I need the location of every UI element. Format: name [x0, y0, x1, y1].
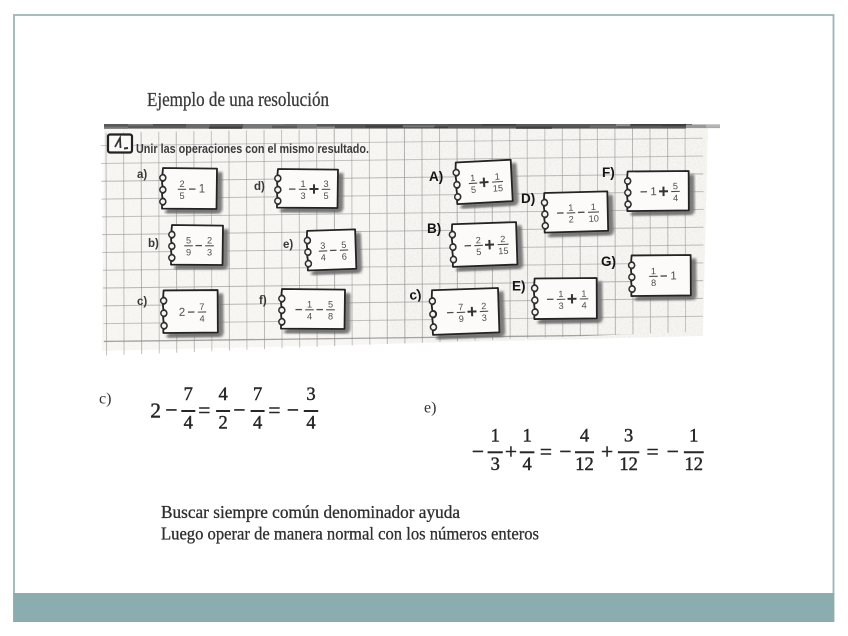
- svg-text:5: 5: [186, 236, 191, 246]
- svg-text:F): F): [602, 165, 615, 180]
- svg-text:1: 1: [307, 300, 312, 310]
- svg-text:5: 5: [673, 181, 678, 191]
- svg-text:2: 2: [500, 234, 506, 244]
- svg-text:G): G): [601, 254, 616, 269]
- svg-text:9: 9: [459, 314, 465, 324]
- svg-text:1: 1: [300, 179, 305, 189]
- svg-text:4: 4: [307, 311, 312, 321]
- svg-text:2: 2: [179, 307, 186, 319]
- svg-text:Buscar siempre común denominad: Buscar siempre común denominador ayuda: [161, 502, 460, 522]
- svg-text:4: 4: [184, 414, 193, 434]
- svg-text:2: 2: [569, 214, 574, 224]
- svg-text:−: −: [233, 398, 245, 422]
- svg-text:=: =: [198, 398, 210, 422]
- svg-text:2: 2: [481, 301, 487, 311]
- svg-text:2: 2: [179, 179, 184, 189]
- svg-text:c): c): [99, 391, 111, 408]
- svg-text:2: 2: [218, 414, 227, 434]
- svg-text:3: 3: [491, 455, 500, 475]
- svg-text:−: −: [472, 439, 484, 463]
- svg-text:1: 1: [568, 203, 573, 213]
- svg-text:1: 1: [522, 426, 531, 446]
- svg-text:4: 4: [253, 414, 262, 434]
- svg-text:3: 3: [323, 179, 328, 189]
- svg-text:3: 3: [558, 301, 563, 311]
- svg-text:10: 10: [588, 214, 599, 224]
- svg-text:4: 4: [580, 426, 589, 446]
- svg-text:12: 12: [575, 455, 594, 475]
- svg-text:4: 4: [199, 314, 204, 324]
- svg-text:=: =: [647, 439, 659, 463]
- svg-text:D): D): [521, 191, 535, 206]
- svg-text:a): a): [137, 169, 147, 181]
- svg-text:b): b): [148, 238, 159, 250]
- svg-text:+: +: [505, 439, 517, 463]
- svg-text:12: 12: [619, 455, 638, 475]
- svg-text:1: 1: [651, 266, 656, 276]
- svg-text:Unir las operaciones con el mi: Unir las operaciones con el mismo result…: [136, 141, 369, 156]
- svg-text:8: 8: [328, 311, 333, 321]
- svg-text:f): f): [259, 295, 267, 307]
- svg-text:1: 1: [581, 289, 586, 299]
- svg-text:c): c): [137, 296, 147, 308]
- svg-text:15: 15: [498, 246, 509, 256]
- svg-text:4: 4: [306, 414, 315, 434]
- svg-text:1: 1: [494, 171, 500, 181]
- svg-text:4: 4: [673, 193, 678, 203]
- svg-text:7: 7: [458, 302, 464, 312]
- svg-text:3: 3: [207, 247, 212, 257]
- svg-text:1: 1: [491, 426, 500, 446]
- svg-text:5: 5: [328, 300, 333, 310]
- svg-text:3: 3: [320, 241, 326, 251]
- svg-text:2: 2: [150, 399, 161, 423]
- svg-text:2: 2: [476, 235, 482, 245]
- svg-text:+: +: [601, 439, 613, 463]
- svg-text:1: 1: [470, 173, 476, 183]
- svg-text:7: 7: [199, 302, 204, 312]
- svg-text:B): B): [427, 221, 441, 236]
- svg-text:9: 9: [186, 247, 191, 257]
- svg-text:−: −: [165, 398, 177, 422]
- svg-text:3: 3: [482, 313, 488, 323]
- svg-text:7: 7: [184, 385, 193, 405]
- svg-text:1: 1: [670, 270, 677, 282]
- svg-text:15: 15: [493, 183, 504, 194]
- svg-text:e): e): [283, 239, 293, 251]
- svg-text:7: 7: [253, 385, 262, 405]
- svg-text:3: 3: [306, 385, 315, 405]
- svg-text:Luego operar de manera normal: Luego operar de manera normal con los nú…: [161, 523, 539, 543]
- svg-text:4: 4: [581, 300, 586, 310]
- svg-text:=: =: [268, 398, 280, 422]
- svg-text:c): c): [408, 286, 422, 303]
- svg-text:e): e): [424, 400, 436, 417]
- svg-text:5: 5: [471, 185, 477, 195]
- svg-text:−: −: [559, 439, 571, 463]
- svg-text:3: 3: [300, 191, 305, 201]
- svg-text:5: 5: [476, 247, 482, 257]
- svg-text:1: 1: [558, 289, 563, 299]
- svg-text:A): A): [429, 169, 443, 184]
- svg-text:=: =: [540, 439, 552, 463]
- svg-text:1: 1: [199, 184, 205, 196]
- svg-text:5: 5: [341, 240, 347, 250]
- svg-text:1: 1: [650, 186, 657, 198]
- svg-text:5: 5: [179, 191, 184, 201]
- svg-text:−: −: [287, 398, 299, 422]
- svg-text:d): d): [254, 181, 265, 193]
- svg-text:2: 2: [207, 236, 212, 246]
- svg-text:4: 4: [218, 385, 227, 405]
- svg-text:1: 1: [689, 426, 698, 446]
- svg-text:5: 5: [323, 191, 328, 201]
- svg-text:12: 12: [685, 455, 704, 475]
- svg-text:E): E): [512, 279, 526, 294]
- svg-text:4: 4: [522, 455, 531, 475]
- svg-text:Ejemplo de una resolución: Ejemplo de una resolución: [147, 89, 329, 111]
- svg-text:4: 4: [321, 253, 327, 263]
- svg-text:−: −: [667, 439, 679, 463]
- svg-text:6: 6: [342, 252, 348, 262]
- svg-text:3: 3: [624, 426, 633, 446]
- svg-text:1: 1: [591, 202, 596, 212]
- svg-text:8: 8: [651, 278, 656, 288]
